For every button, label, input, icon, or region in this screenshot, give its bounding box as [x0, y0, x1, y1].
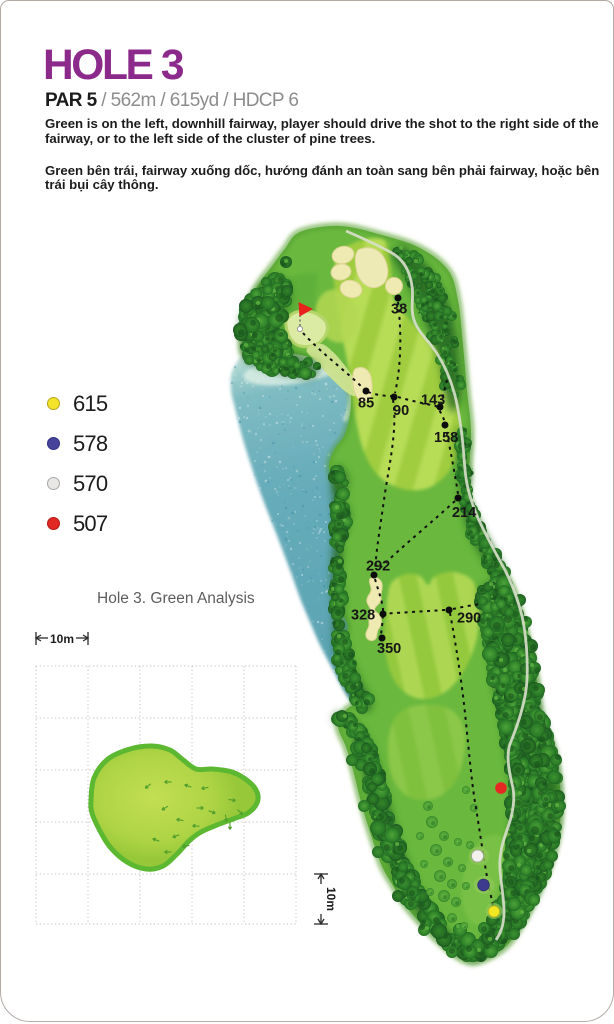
svg-text:350: 350 — [377, 641, 401, 657]
svg-text:10m: 10m — [50, 632, 74, 646]
svg-text:143: 143 — [421, 393, 445, 409]
svg-text:158: 158 — [434, 430, 458, 446]
svg-text:290: 290 — [457, 611, 481, 627]
svg-text:10m: 10m — [324, 887, 338, 911]
svg-text:214: 214 — [452, 505, 476, 521]
svg-text:292: 292 — [366, 559, 390, 575]
svg-text:85: 85 — [358, 396, 374, 412]
svg-text:38: 38 — [391, 302, 407, 318]
svg-text:328: 328 — [351, 608, 375, 624]
svg-text:90: 90 — [393, 403, 409, 419]
